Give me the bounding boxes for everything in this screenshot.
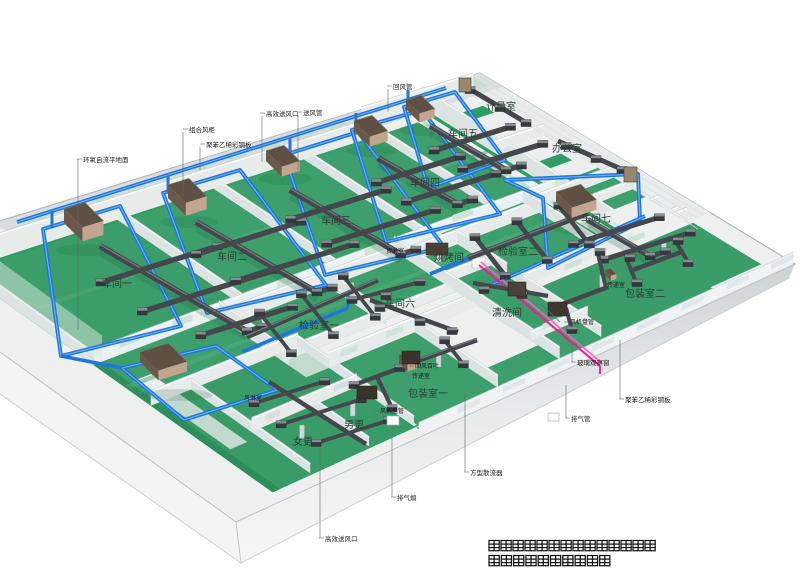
svg-text:女更: 女更	[293, 435, 313, 448]
svg-text:计量室: 计量室	[486, 100, 516, 113]
svg-text:传递室: 传递室	[412, 372, 430, 380]
svg-text:货淋室: 货淋室	[386, 247, 404, 255]
svg-text:包装室一: 包装室一	[408, 387, 448, 400]
svg-text:排气煽: 排气煽	[397, 493, 417, 502]
svg-text:办公室: 办公室	[552, 142, 582, 155]
svg-text:风机盘管: 风机盘管	[570, 318, 594, 326]
svg-text:方型散流器: 方型散流器	[470, 468, 503, 477]
svg-text:车间六: 车间六	[385, 297, 415, 310]
svg-text:聚苯乙稀彩钢板: 聚苯乙稀彩钢板	[206, 140, 252, 149]
svg-text:玻璃观察窗: 玻璃观察窗	[577, 358, 610, 367]
svg-text:送风管: 送风管	[303, 108, 323, 117]
svg-text:车间一: 车间一	[102, 277, 132, 290]
svg-text:排气管: 排气管	[571, 414, 591, 423]
svg-text:烘烤间: 烘烤间	[434, 251, 464, 264]
svg-text:车间七: 车间七	[581, 212, 611, 225]
svg-text:检验室二: 检验室二	[498, 245, 538, 258]
svg-text:回风百叶: 回风百叶	[415, 362, 439, 370]
svg-text:检验室一: 检验室一	[299, 319, 339, 332]
svg-text:传递室: 传递室	[607, 281, 625, 289]
svg-text:清洗间: 清洗间	[492, 306, 522, 319]
svg-text:风淋室: 风淋室	[244, 394, 262, 402]
svg-text:聚苯乙稀彩钢板: 聚苯乙稀彩钢板	[625, 395, 671, 404]
svg-text:组合风柜: 组合风柜	[189, 125, 216, 134]
svg-text:高效送风口: 高效送风口	[325, 534, 358, 543]
svg-text:车间三: 车间三	[321, 214, 351, 227]
svg-text:车间四: 车间四	[410, 176, 440, 189]
svg-text:高效送风口: 高效送风口	[266, 109, 299, 118]
svg-text:环氧自流平地面: 环氧自流平地面	[83, 155, 129, 164]
svg-text:男更: 男更	[344, 419, 364, 431]
svg-text:车间二: 车间二	[217, 250, 247, 263]
svg-text:包装室二: 包装室二	[625, 287, 665, 300]
svg-text:风机盘管: 风机盘管	[380, 407, 404, 415]
svg-text:车间五: 车间五	[448, 127, 478, 140]
svg-text:回风管: 回风管	[393, 82, 413, 91]
